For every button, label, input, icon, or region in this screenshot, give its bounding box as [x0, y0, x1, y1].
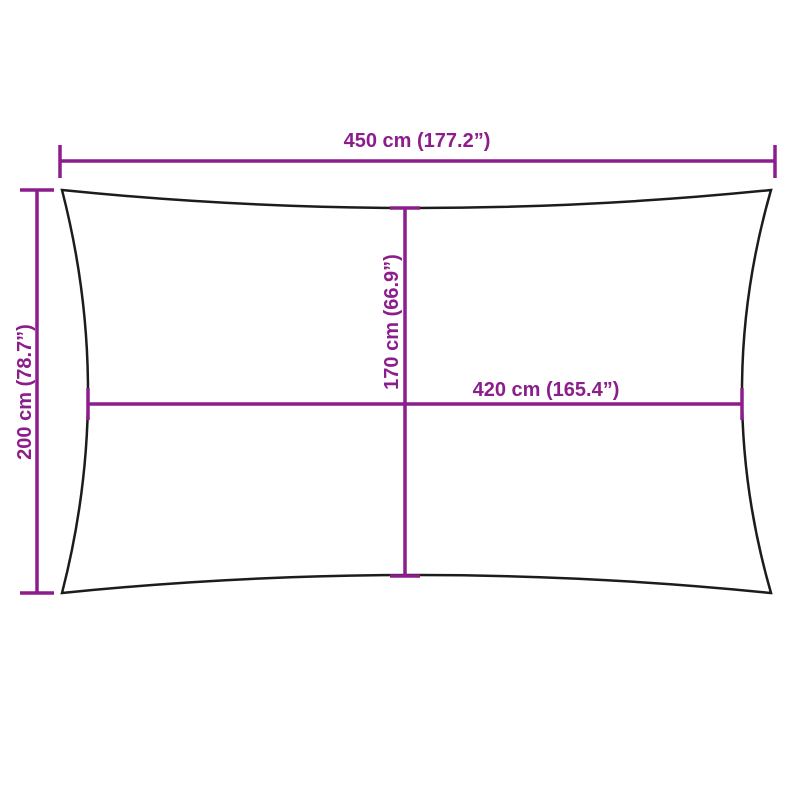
dimension-labels: 450 cm (177.2”) 200 cm (78.7”) 170 cm (6… — [14, 130, 619, 460]
dimension-diagram: 450 cm (177.2”) 200 cm (78.7”) 170 cm (6… — [0, 0, 800, 800]
inner-width-label: 420 cm (165.4”) — [473, 379, 620, 401]
sail-outline — [62, 190, 771, 593]
overall-width-label: 450 cm (177.2”) — [344, 130, 491, 152]
overall-height-label: 200 cm (78.7”) — [14, 324, 36, 460]
diagram-canvas: 450 cm (177.2”) 200 cm (78.7”) 170 cm (6… — [0, 0, 800, 800]
inner-height-label: 170 cm (66.9”) — [381, 254, 403, 390]
